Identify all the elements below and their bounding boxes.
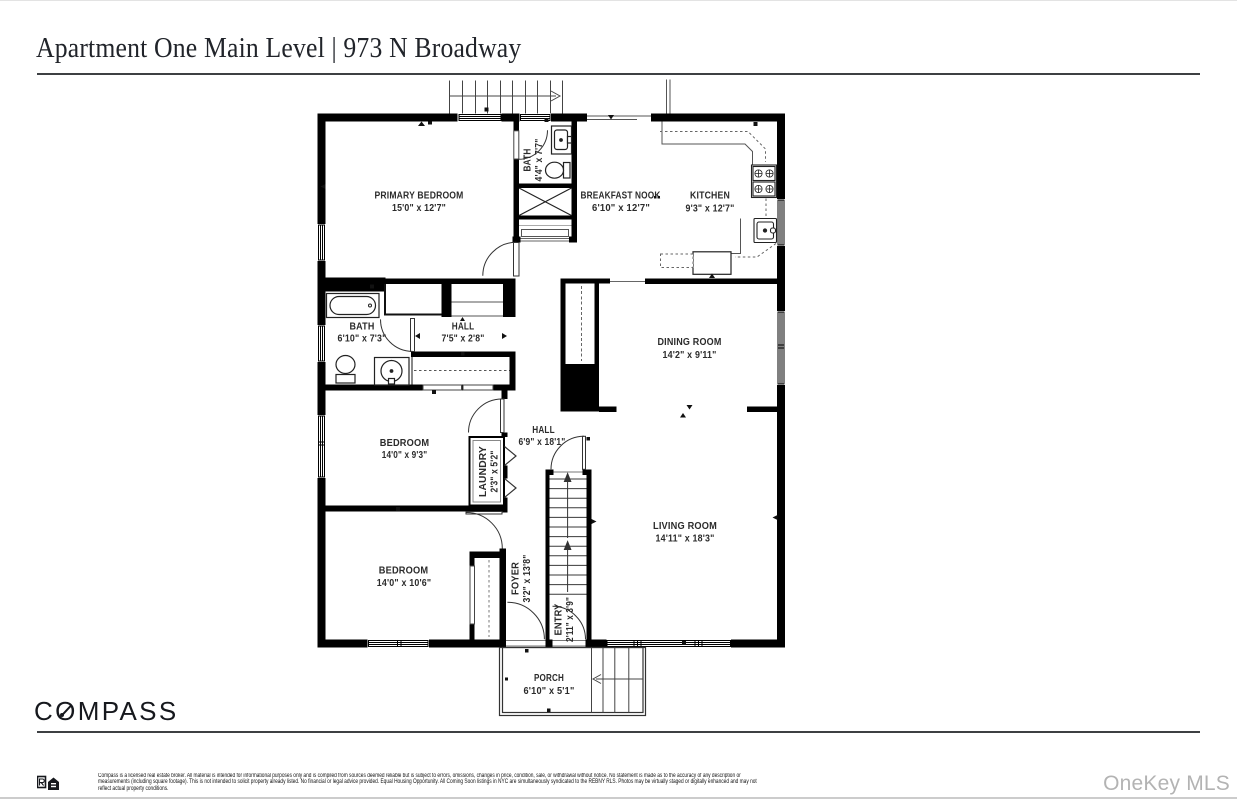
svg-text:BEDROOM: BEDROOM <box>379 566 429 577</box>
svg-text:FOYER: FOYER <box>511 561 522 595</box>
svg-text:3'2" x 13'8": 3'2" x 13'8" <box>522 554 533 602</box>
svg-text:DINING ROOM: DINING ROOM <box>658 337 722 348</box>
svg-text:4'4" x 7'7": 4'4" x 7'7" <box>534 138 545 181</box>
svg-text:7'5" x 2'8": 7'5" x 2'8" <box>442 334 485 345</box>
svg-text:KITCHEN: KITCHEN <box>690 191 730 202</box>
svg-text:HALL: HALL <box>452 322 475 333</box>
svg-text:BREAKFAST NOOK: BREAKFAST NOOK <box>581 191 661 202</box>
svg-text:BATH: BATH <box>523 149 534 172</box>
svg-text:PORCH: PORCH <box>534 673 564 684</box>
svg-text:6'10" x 7'3": 6'10" x 7'3" <box>338 334 387 345</box>
svg-text:14'11" x 18'3": 14'11" x 18'3" <box>656 534 715 545</box>
svg-text:6'10" x 12'7": 6'10" x 12'7" <box>592 203 650 214</box>
svg-text:6'10" x 5'1": 6'10" x 5'1" <box>524 686 575 697</box>
svg-text:6'9" x 18'1": 6'9" x 18'1" <box>519 437 566 448</box>
svg-text:LIVING ROOM: LIVING ROOM <box>653 521 717 532</box>
svg-text:14'2" x 9'11": 14'2" x 9'11" <box>663 350 717 361</box>
svg-text:LAUNDRY: LAUNDRY <box>478 446 489 497</box>
svg-text:14'0" x 10'6": 14'0" x 10'6" <box>377 578 432 589</box>
svg-text:HALL: HALL <box>532 425 555 436</box>
svg-text:15'0" x 12'7": 15'0" x 12'7" <box>392 203 446 214</box>
svg-text:BEDROOM: BEDROOM <box>380 438 430 449</box>
svg-text:ENTRY: ENTRY <box>554 603 565 635</box>
svg-text:BATH: BATH <box>350 322 375 333</box>
svg-text:14'0" x 9'3": 14'0" x 9'3" <box>382 450 428 461</box>
svg-text:2'11" x 3'9": 2'11" x 3'9" <box>565 597 576 642</box>
svg-text:2'3" x 5'2": 2'3" x 5'2" <box>490 450 501 492</box>
svg-text:9'3" x 12'7": 9'3" x 12'7" <box>686 204 735 215</box>
svg-text:PRIMARY BEDROOM: PRIMARY BEDROOM <box>375 191 464 202</box>
